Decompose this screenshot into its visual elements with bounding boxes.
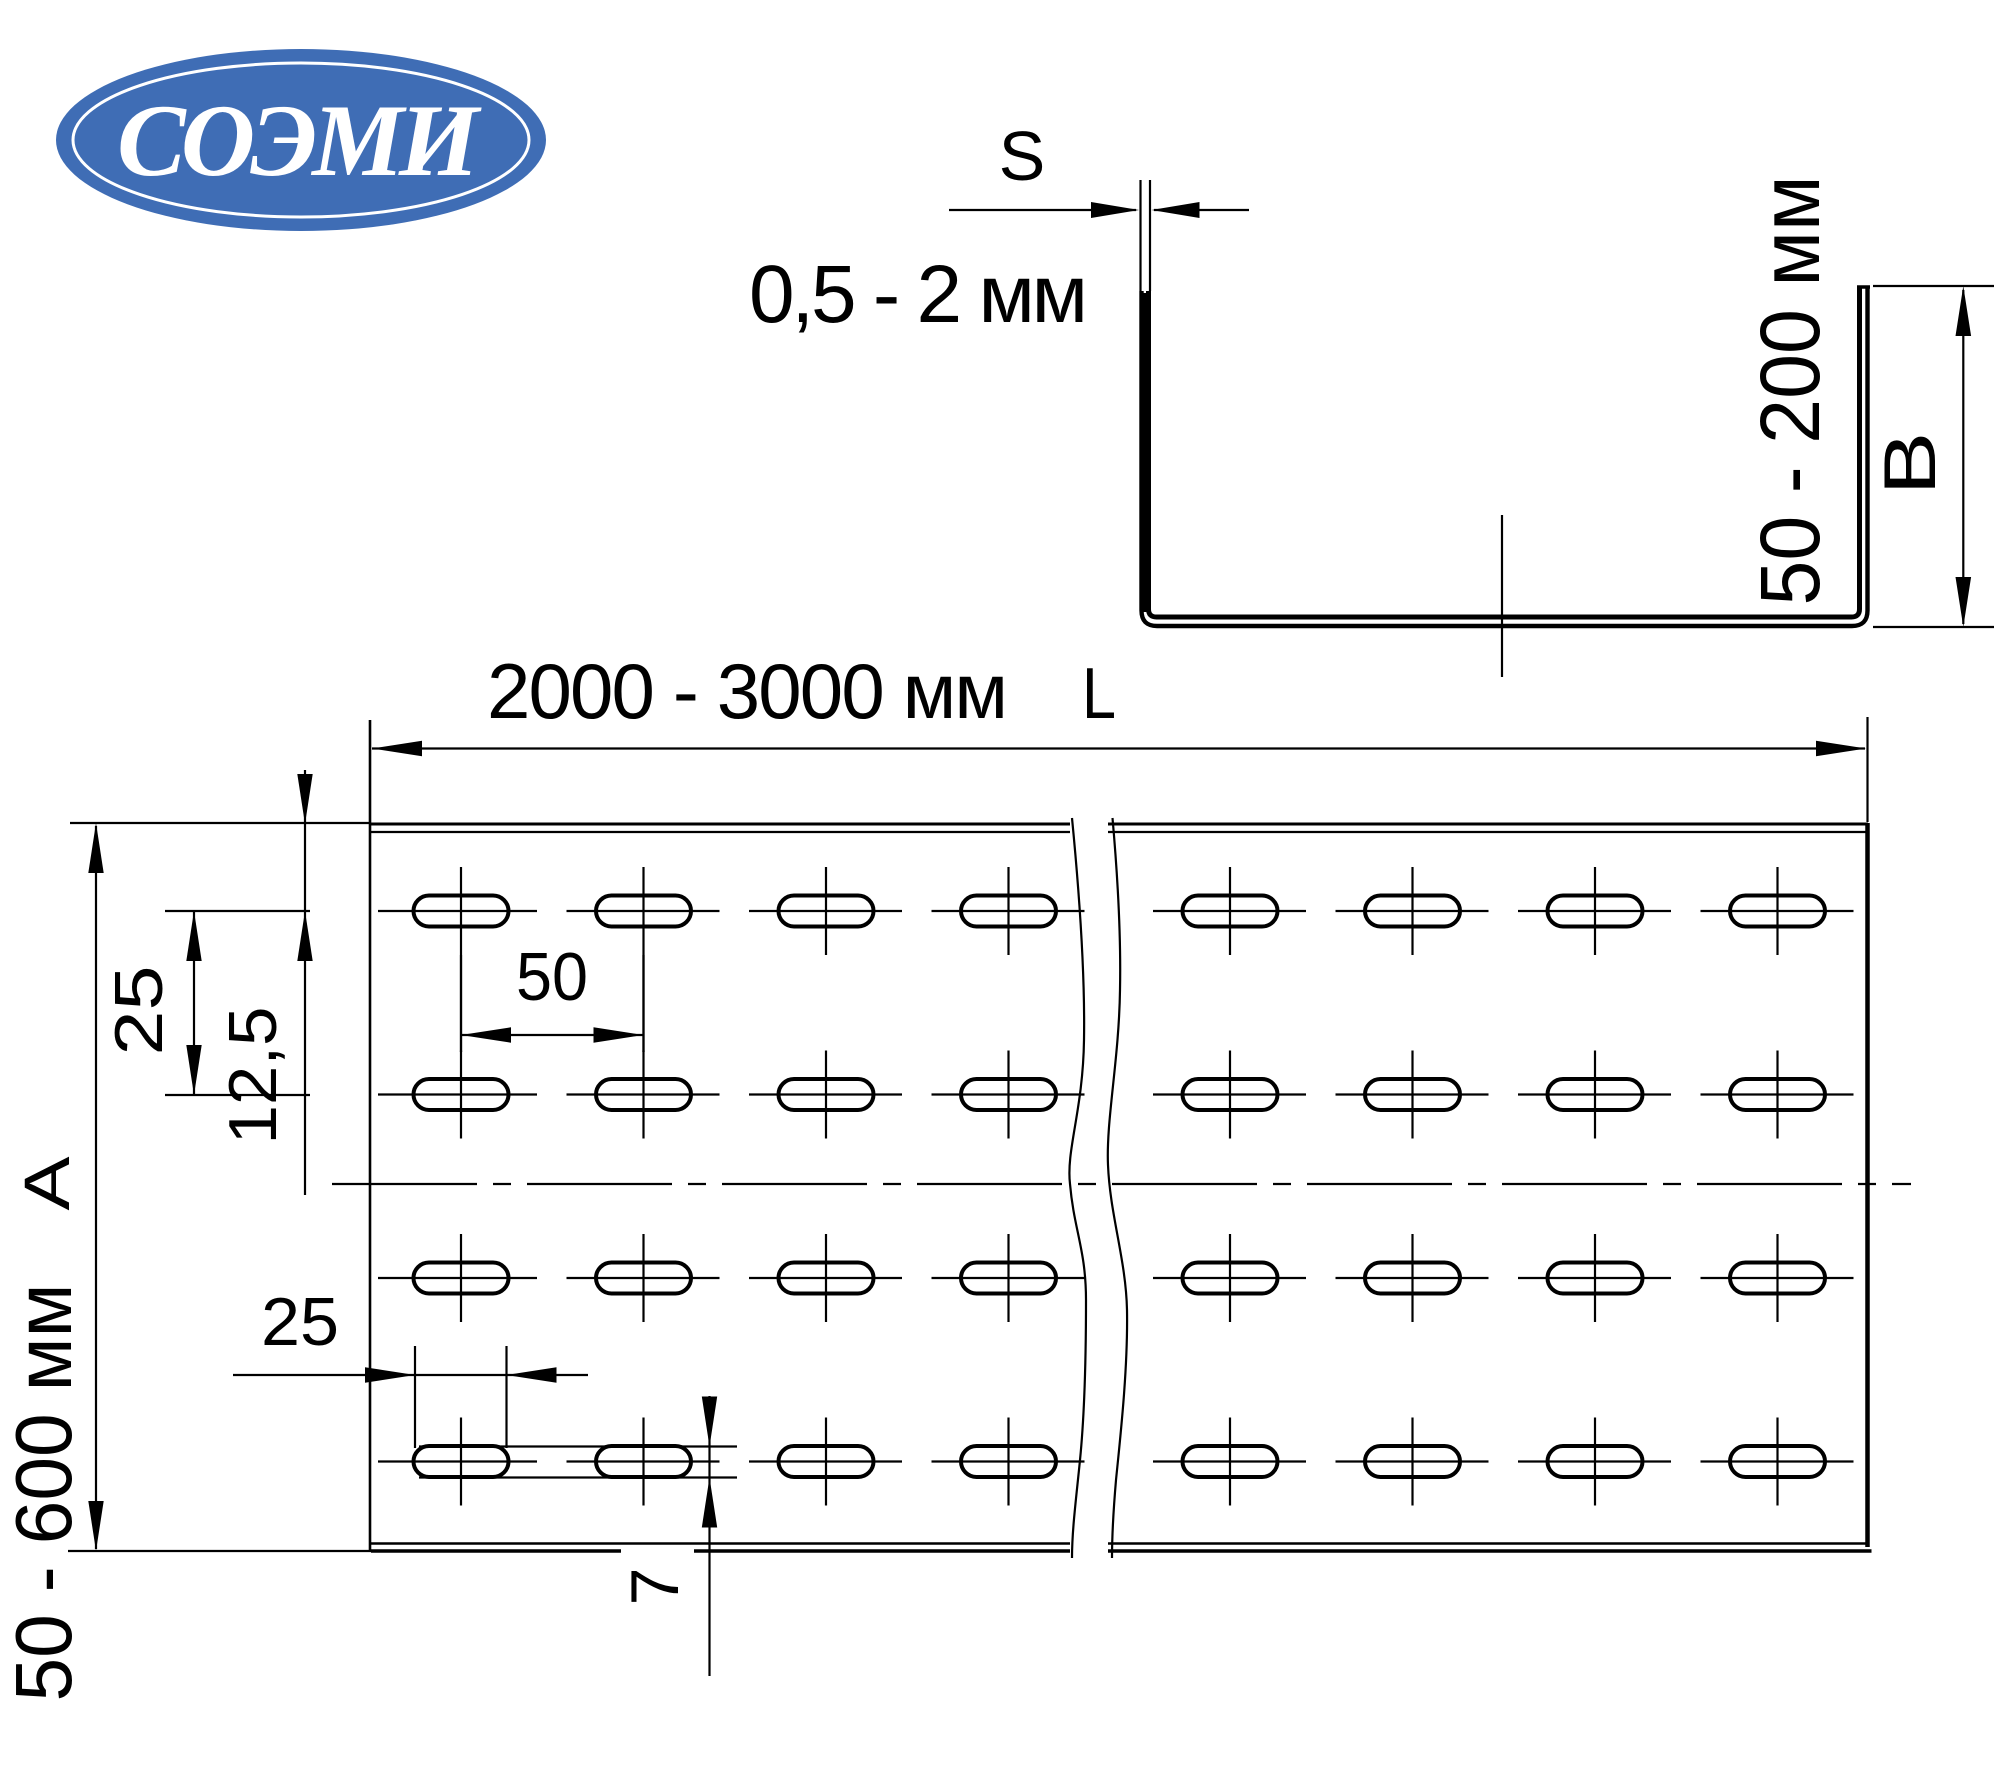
svg-text:B: B xyxy=(1870,432,1951,496)
svg-text:A: A xyxy=(11,1156,83,1210)
svg-text:25: 25 xyxy=(101,966,177,1056)
svg-text:50 - 600 мм: 50 - 600 мм xyxy=(0,1284,88,1702)
svg-text:СОЭМИ: СОЭМИ xyxy=(117,84,482,198)
svg-text:7: 7 xyxy=(617,1568,693,1606)
svg-text:25: 25 xyxy=(261,1284,339,1360)
svg-text:12,5: 12,5 xyxy=(215,1007,291,1145)
svg-text:0,5 - 2 мм: 0,5 - 2 мм xyxy=(749,249,1088,340)
svg-text:2000 - 3000 мм: 2000 - 3000 мм xyxy=(487,647,1008,735)
svg-text:50: 50 xyxy=(516,939,588,1015)
svg-text:S: S xyxy=(999,117,1046,195)
svg-text:L: L xyxy=(1082,654,1116,734)
svg-text:50 - 200 мм: 50 - 200 мм xyxy=(1743,176,1837,606)
